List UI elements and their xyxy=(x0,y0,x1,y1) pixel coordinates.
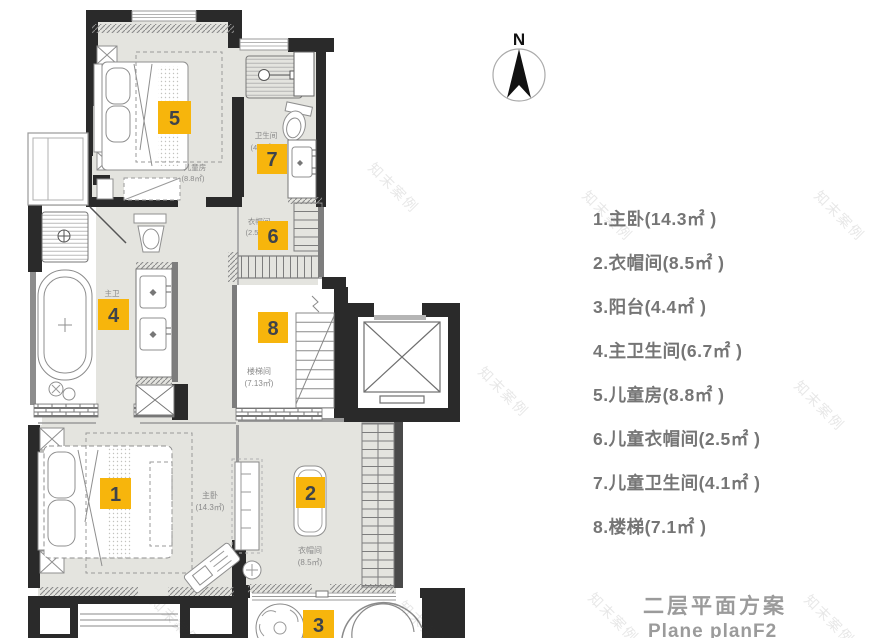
upper-stair xyxy=(238,256,322,278)
floor-plan-page: 儿童房 (8.8㎡) 卫生间 (4.1㎡) 衣帽间 (2.5㎡) 主卫 (6.7… xyxy=(0,0,880,638)
room1-name: 主卧 xyxy=(202,490,218,500)
legend-item-7: 7.儿童卫生间(4.1㎡ ) xyxy=(593,470,760,495)
floor-plan-drawing: 儿童房 (8.8㎡) 卫生间 (4.1㎡) 衣帽间 (2.5㎡) 主卫 (6.7… xyxy=(0,0,560,638)
north-compass: N xyxy=(493,30,545,101)
room6-closet xyxy=(294,203,322,251)
legend-item-5: 5.儿童房(8.8㎡ ) xyxy=(593,382,760,407)
legend-item-3: 3.阳台(4.4㎡ ) xyxy=(593,294,760,319)
room2-name: 衣帽间 xyxy=(298,545,322,555)
plan-title-en: Plane planF2 xyxy=(648,621,777,638)
marker-2: 2 xyxy=(296,477,325,508)
svg-text:6: 6 xyxy=(267,226,278,248)
svg-text:3: 3 xyxy=(313,615,324,637)
room-legend: 1.主卧(14.3㎡ ) 2.衣帽间(8.5㎡ ) 3.阳台(4.4㎡ ) 4.… xyxy=(593,206,760,539)
room4-name: 主卫 xyxy=(105,288,120,298)
svg-text:1: 1 xyxy=(110,484,121,506)
legend-item-2: 2.衣帽间(8.5㎡ ) xyxy=(593,250,760,275)
marker-8: 8 xyxy=(258,312,288,343)
marker-1: 1 xyxy=(100,478,131,509)
legend-item-4: 4.主卫生间(6.7㎡ ) xyxy=(593,338,760,363)
room5-area: (8.8㎡) xyxy=(182,174,205,183)
svg-text:7: 7 xyxy=(266,149,277,171)
room1-area: (14.3㎡) xyxy=(196,503,225,512)
marker-5: 5 xyxy=(158,101,191,134)
marker-7: 7 xyxy=(257,144,287,174)
plan-title-zh: 二层平面方案 xyxy=(643,590,787,620)
svg-text:8: 8 xyxy=(267,318,278,340)
room2-area: (8.5㎡) xyxy=(298,558,323,567)
marker-6: 6 xyxy=(258,221,288,250)
watermark: 知末案例 xyxy=(810,186,869,245)
elevator xyxy=(358,315,448,408)
svg-text:5: 5 xyxy=(169,108,180,130)
svg-text:2: 2 xyxy=(305,483,316,505)
balcony xyxy=(248,591,422,638)
room8-name: 楼梯间 xyxy=(247,366,271,376)
watermark: 知末案例 xyxy=(584,588,643,638)
north-label: N xyxy=(513,30,525,49)
room5-name: 儿童房 xyxy=(184,162,207,172)
legend-item-8: 8.楼梯(7.1㎡ ) xyxy=(593,514,760,539)
marker-4: 4 xyxy=(98,299,129,330)
svg-text:4: 4 xyxy=(108,305,120,327)
watermark: 知末案例 xyxy=(790,376,849,435)
legend-item-6: 6.儿童衣帽间(2.5㎡ ) xyxy=(593,426,760,451)
marker-3: 3 xyxy=(303,610,334,638)
room8-area: (7.13㎡) xyxy=(245,379,274,388)
watermark: 知末案例 xyxy=(800,590,859,638)
room7-name: 卫生间 xyxy=(255,130,278,140)
room8-stairs xyxy=(296,296,334,408)
